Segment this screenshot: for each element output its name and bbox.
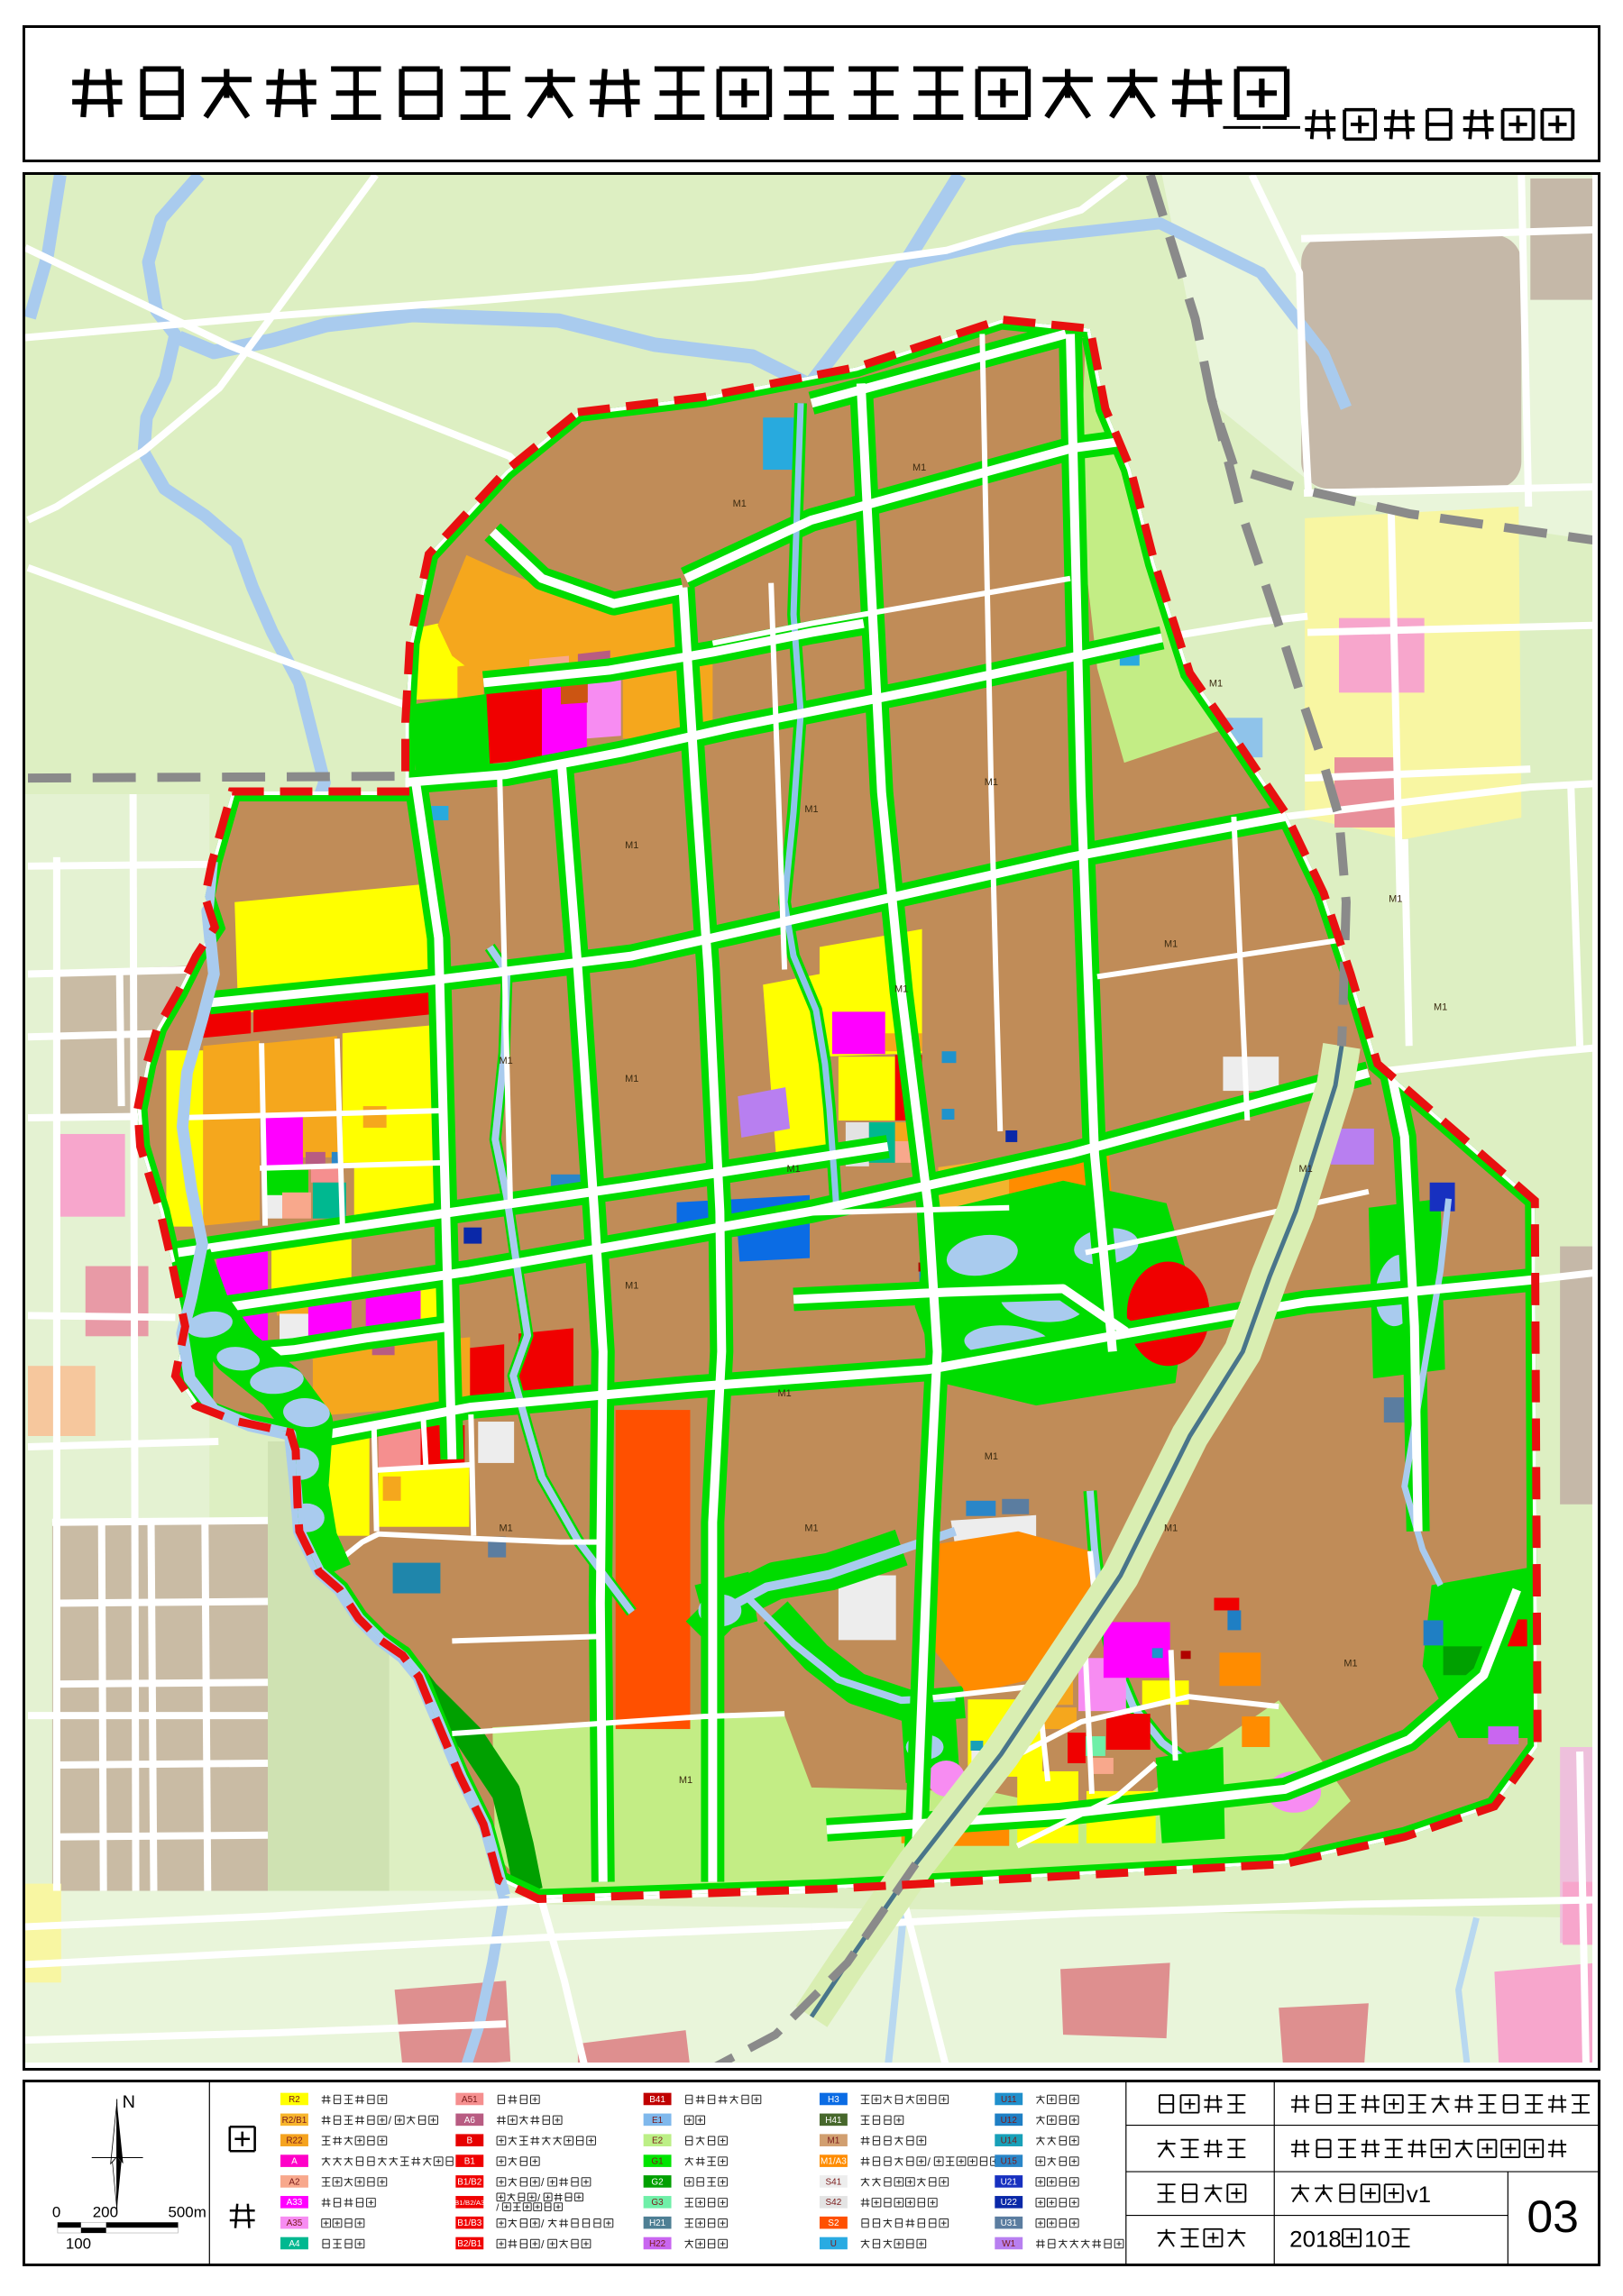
- svg-text:/: /: [541, 2218, 545, 2230]
- svg-text:M1: M1: [786, 1164, 800, 1175]
- svg-text:M1: M1: [912, 462, 926, 473]
- svg-text:M1: M1: [804, 1523, 818, 1534]
- svg-text:M1: M1: [804, 804, 818, 815]
- svg-text:M1: M1: [679, 1775, 692, 1786]
- svg-text:A4: A4: [289, 2239, 300, 2249]
- svg-text:M1: M1: [1209, 678, 1223, 689]
- svg-text:M1: M1: [1389, 894, 1402, 905]
- svg-text:M1: M1: [894, 983, 908, 994]
- svg-text:/: /: [541, 2238, 545, 2251]
- svg-text:U11: U11: [1001, 2095, 1017, 2105]
- svg-text:M1: M1: [625, 840, 638, 851]
- svg-text:M1: M1: [500, 1056, 513, 1066]
- svg-text:U31: U31: [1001, 2218, 1017, 2228]
- svg-text:U: U: [830, 2239, 837, 2249]
- svg-text:A2: A2: [289, 2177, 299, 2187]
- svg-text:M1: M1: [500, 1523, 513, 1534]
- svg-text:R22: R22: [286, 2136, 302, 2146]
- svg-text:200: 200: [93, 2204, 118, 2221]
- svg-text:M1: M1: [1164, 1523, 1178, 1534]
- svg-text:B1/B2/A3: B1/B2/A3: [454, 2199, 485, 2207]
- svg-text:/: /: [389, 2115, 392, 2127]
- svg-text:M1: M1: [625, 1280, 638, 1291]
- svg-text:U21: U21: [1001, 2177, 1017, 2187]
- svg-text:G3: G3: [651, 2198, 664, 2208]
- svg-text:B41: B41: [649, 2095, 665, 2105]
- svg-text:10: 10: [1364, 2227, 1390, 2253]
- svg-text:M1: M1: [625, 1074, 638, 1084]
- svg-text:H41: H41: [825, 2116, 841, 2126]
- svg-text:E2: E2: [652, 2136, 663, 2146]
- svg-text:A33: A33: [287, 2198, 303, 2208]
- svg-text:500m: 500m: [168, 2204, 206, 2221]
- svg-text:M1: M1: [1299, 1164, 1313, 1175]
- svg-text:2018: 2018: [1289, 2227, 1342, 2253]
- svg-text:/: /: [928, 2156, 931, 2169]
- svg-text:S42: S42: [826, 2198, 842, 2208]
- svg-text:A: A: [291, 2157, 298, 2167]
- svg-text:/: /: [496, 2203, 500, 2214]
- svg-text:M1: M1: [827, 2136, 839, 2146]
- svg-text:U22: U22: [1001, 2198, 1017, 2208]
- svg-text:R2/B1: R2/B1: [282, 2116, 307, 2126]
- svg-text:U12: U12: [1001, 2116, 1017, 2126]
- svg-text:M1: M1: [1434, 1002, 1447, 1012]
- svg-text:W1: W1: [1002, 2239, 1015, 2249]
- svg-text:M1/A3: M1/A3: [821, 2157, 847, 2167]
- svg-text:A35: A35: [287, 2218, 303, 2228]
- svg-text:B: B: [466, 2136, 472, 2146]
- svg-text:A6: A6: [464, 2116, 476, 2126]
- svg-text:U15: U15: [1001, 2157, 1018, 2167]
- svg-text:M1: M1: [733, 499, 747, 509]
- svg-text:M1: M1: [1164, 939, 1178, 950]
- svg-text:M1: M1: [1343, 1658, 1357, 1669]
- svg-text:G2: G2: [651, 2177, 663, 2187]
- svg-text:A51: A51: [462, 2095, 478, 2105]
- svg-text:v1: v1: [1407, 2182, 1431, 2208]
- svg-text:M1: M1: [777, 1388, 791, 1399]
- svg-text:H3: H3: [828, 2095, 839, 2105]
- svg-text:/: /: [541, 2176, 545, 2189]
- svg-text:U14: U14: [1001, 2136, 1018, 2146]
- svg-text:S41: S41: [826, 2177, 842, 2187]
- svg-text:M1: M1: [985, 1451, 998, 1462]
- svg-text:G1: G1: [651, 2157, 663, 2167]
- svg-text:E1: E1: [652, 2116, 663, 2126]
- svg-text:B2/B1: B2/B1: [457, 2239, 481, 2249]
- svg-text:B1: B1: [464, 2157, 475, 2167]
- svg-text:R2: R2: [289, 2095, 300, 2105]
- svg-text:M1: M1: [985, 777, 998, 788]
- svg-text:0: 0: [52, 2204, 60, 2221]
- svg-text:H22: H22: [649, 2239, 665, 2249]
- svg-text:03: 03: [1527, 2191, 1579, 2242]
- svg-text:/: /: [537, 2193, 541, 2204]
- svg-text:B1/B3: B1/B3: [457, 2218, 482, 2228]
- svg-text:100: 100: [66, 2236, 91, 2253]
- svg-text:S2: S2: [828, 2218, 839, 2228]
- svg-text:H21: H21: [649, 2218, 665, 2228]
- svg-text:N: N: [123, 2092, 135, 2112]
- svg-text:B1/B2: B1/B2: [457, 2177, 481, 2187]
